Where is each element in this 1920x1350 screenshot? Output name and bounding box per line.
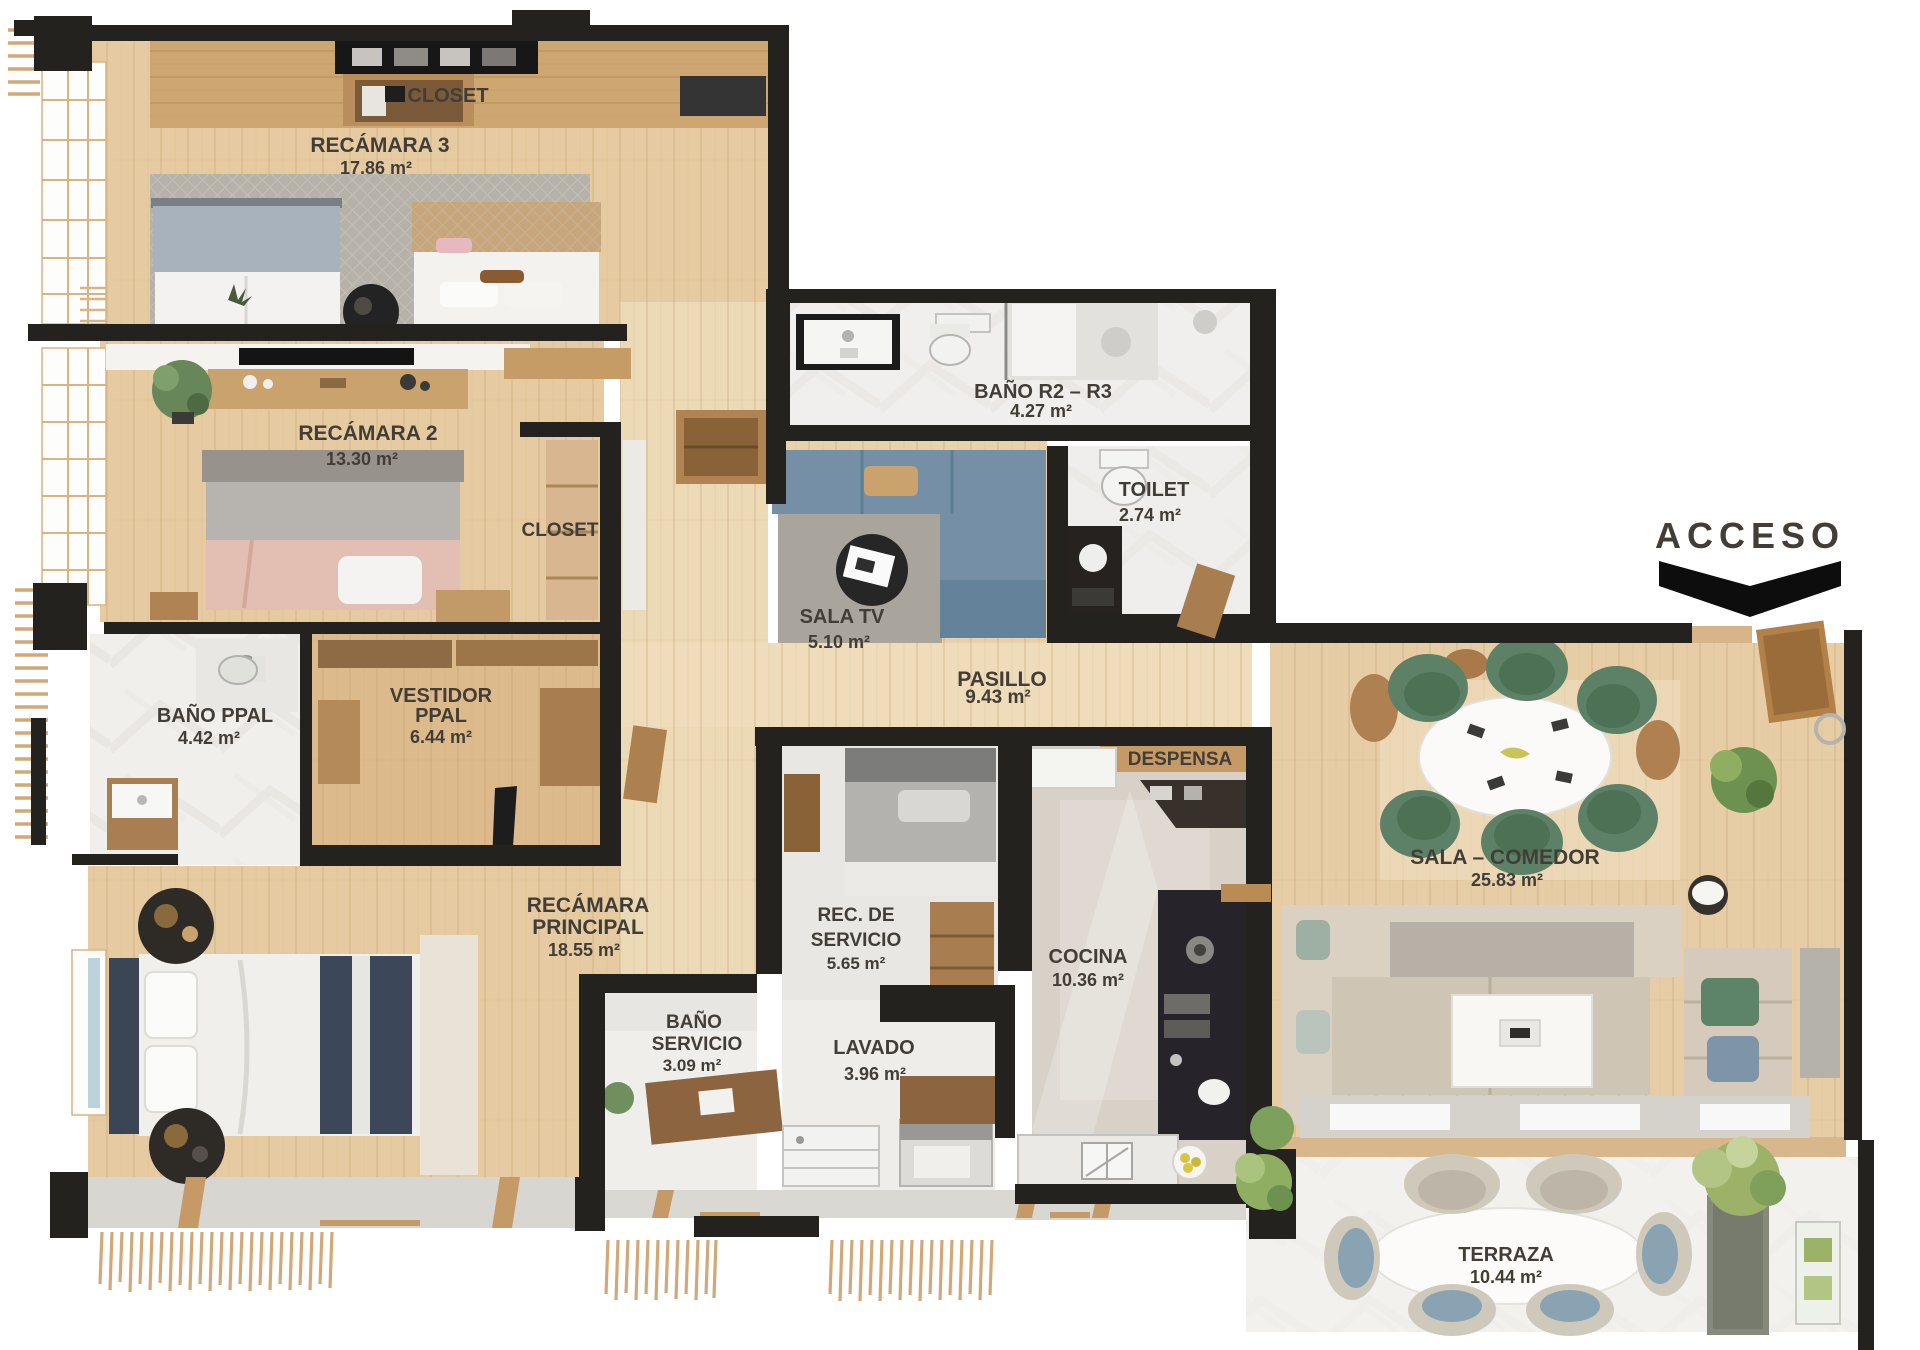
svg-text:LAVADO: LAVADO bbox=[833, 1037, 914, 1059]
svg-text:BAÑO PPAL: BAÑO PPAL bbox=[157, 704, 273, 727]
svg-text:9.43 m²: 9.43 m² bbox=[965, 687, 1030, 708]
svg-text:3.96 m²: 3.96 m² bbox=[844, 1064, 906, 1084]
svg-text:TERRAZA: TERRAZA bbox=[1458, 1244, 1554, 1266]
svg-text:5.65 m²: 5.65 m² bbox=[827, 954, 886, 973]
svg-text:SERVICIO: SERVICIO bbox=[811, 930, 901, 951]
svg-text:PRINCIPAL: PRINCIPAL bbox=[532, 916, 644, 939]
svg-text:10.36 m²: 10.36 m² bbox=[1052, 970, 1124, 990]
svg-text:17.86 m²: 17.86 m² bbox=[340, 158, 412, 178]
svg-text:5.10 m²: 5.10 m² bbox=[808, 632, 870, 652]
svg-text:25.83 m²: 25.83 m² bbox=[1471, 870, 1543, 890]
svg-text:RECÁMARA 3: RECÁMARA 3 bbox=[310, 134, 449, 157]
svg-text:CLOSET: CLOSET bbox=[407, 85, 488, 107]
svg-text:4.27 m²: 4.27 m² bbox=[1010, 401, 1072, 421]
svg-text:SALA TV: SALA TV bbox=[800, 606, 885, 628]
svg-text:REC. DE: REC. DE bbox=[817, 905, 894, 926]
svg-text:RECÁMARA 2: RECÁMARA 2 bbox=[298, 422, 437, 445]
svg-text:SERVICIO: SERVICIO bbox=[652, 1034, 742, 1055]
svg-text:COCINA: COCINA bbox=[1049, 946, 1128, 968]
svg-text:13.30 m²: 13.30 m² bbox=[326, 449, 398, 469]
svg-text:4.42 m²: 4.42 m² bbox=[178, 728, 240, 748]
svg-text:BAÑO R2 – R3: BAÑO R2 – R3 bbox=[974, 380, 1112, 403]
svg-text:CLOSET: CLOSET bbox=[521, 520, 598, 541]
svg-text:10.44 m²: 10.44 m² bbox=[1470, 1267, 1542, 1287]
svg-text:2.74 m²: 2.74 m² bbox=[1119, 505, 1181, 525]
svg-text:18.55 m²: 18.55 m² bbox=[548, 940, 620, 960]
svg-text:DESPENSA: DESPENSA bbox=[1128, 749, 1233, 770]
svg-text:TOILET: TOILET bbox=[1119, 479, 1190, 501]
svg-text:ACCESO: ACCESO bbox=[1655, 515, 1845, 556]
svg-text:PPAL: PPAL bbox=[415, 705, 467, 727]
svg-text:RECÁMARA: RECÁMARA bbox=[527, 894, 650, 917]
svg-text:3.09 m²: 3.09 m² bbox=[663, 1056, 722, 1075]
svg-text:SALA – COMEDOR: SALA – COMEDOR bbox=[1410, 846, 1599, 869]
svg-text:BAÑO: BAÑO bbox=[666, 1011, 722, 1033]
svg-text:6.44 m²: 6.44 m² bbox=[410, 727, 472, 747]
svg-text:VESTIDOR: VESTIDOR bbox=[390, 685, 493, 707]
